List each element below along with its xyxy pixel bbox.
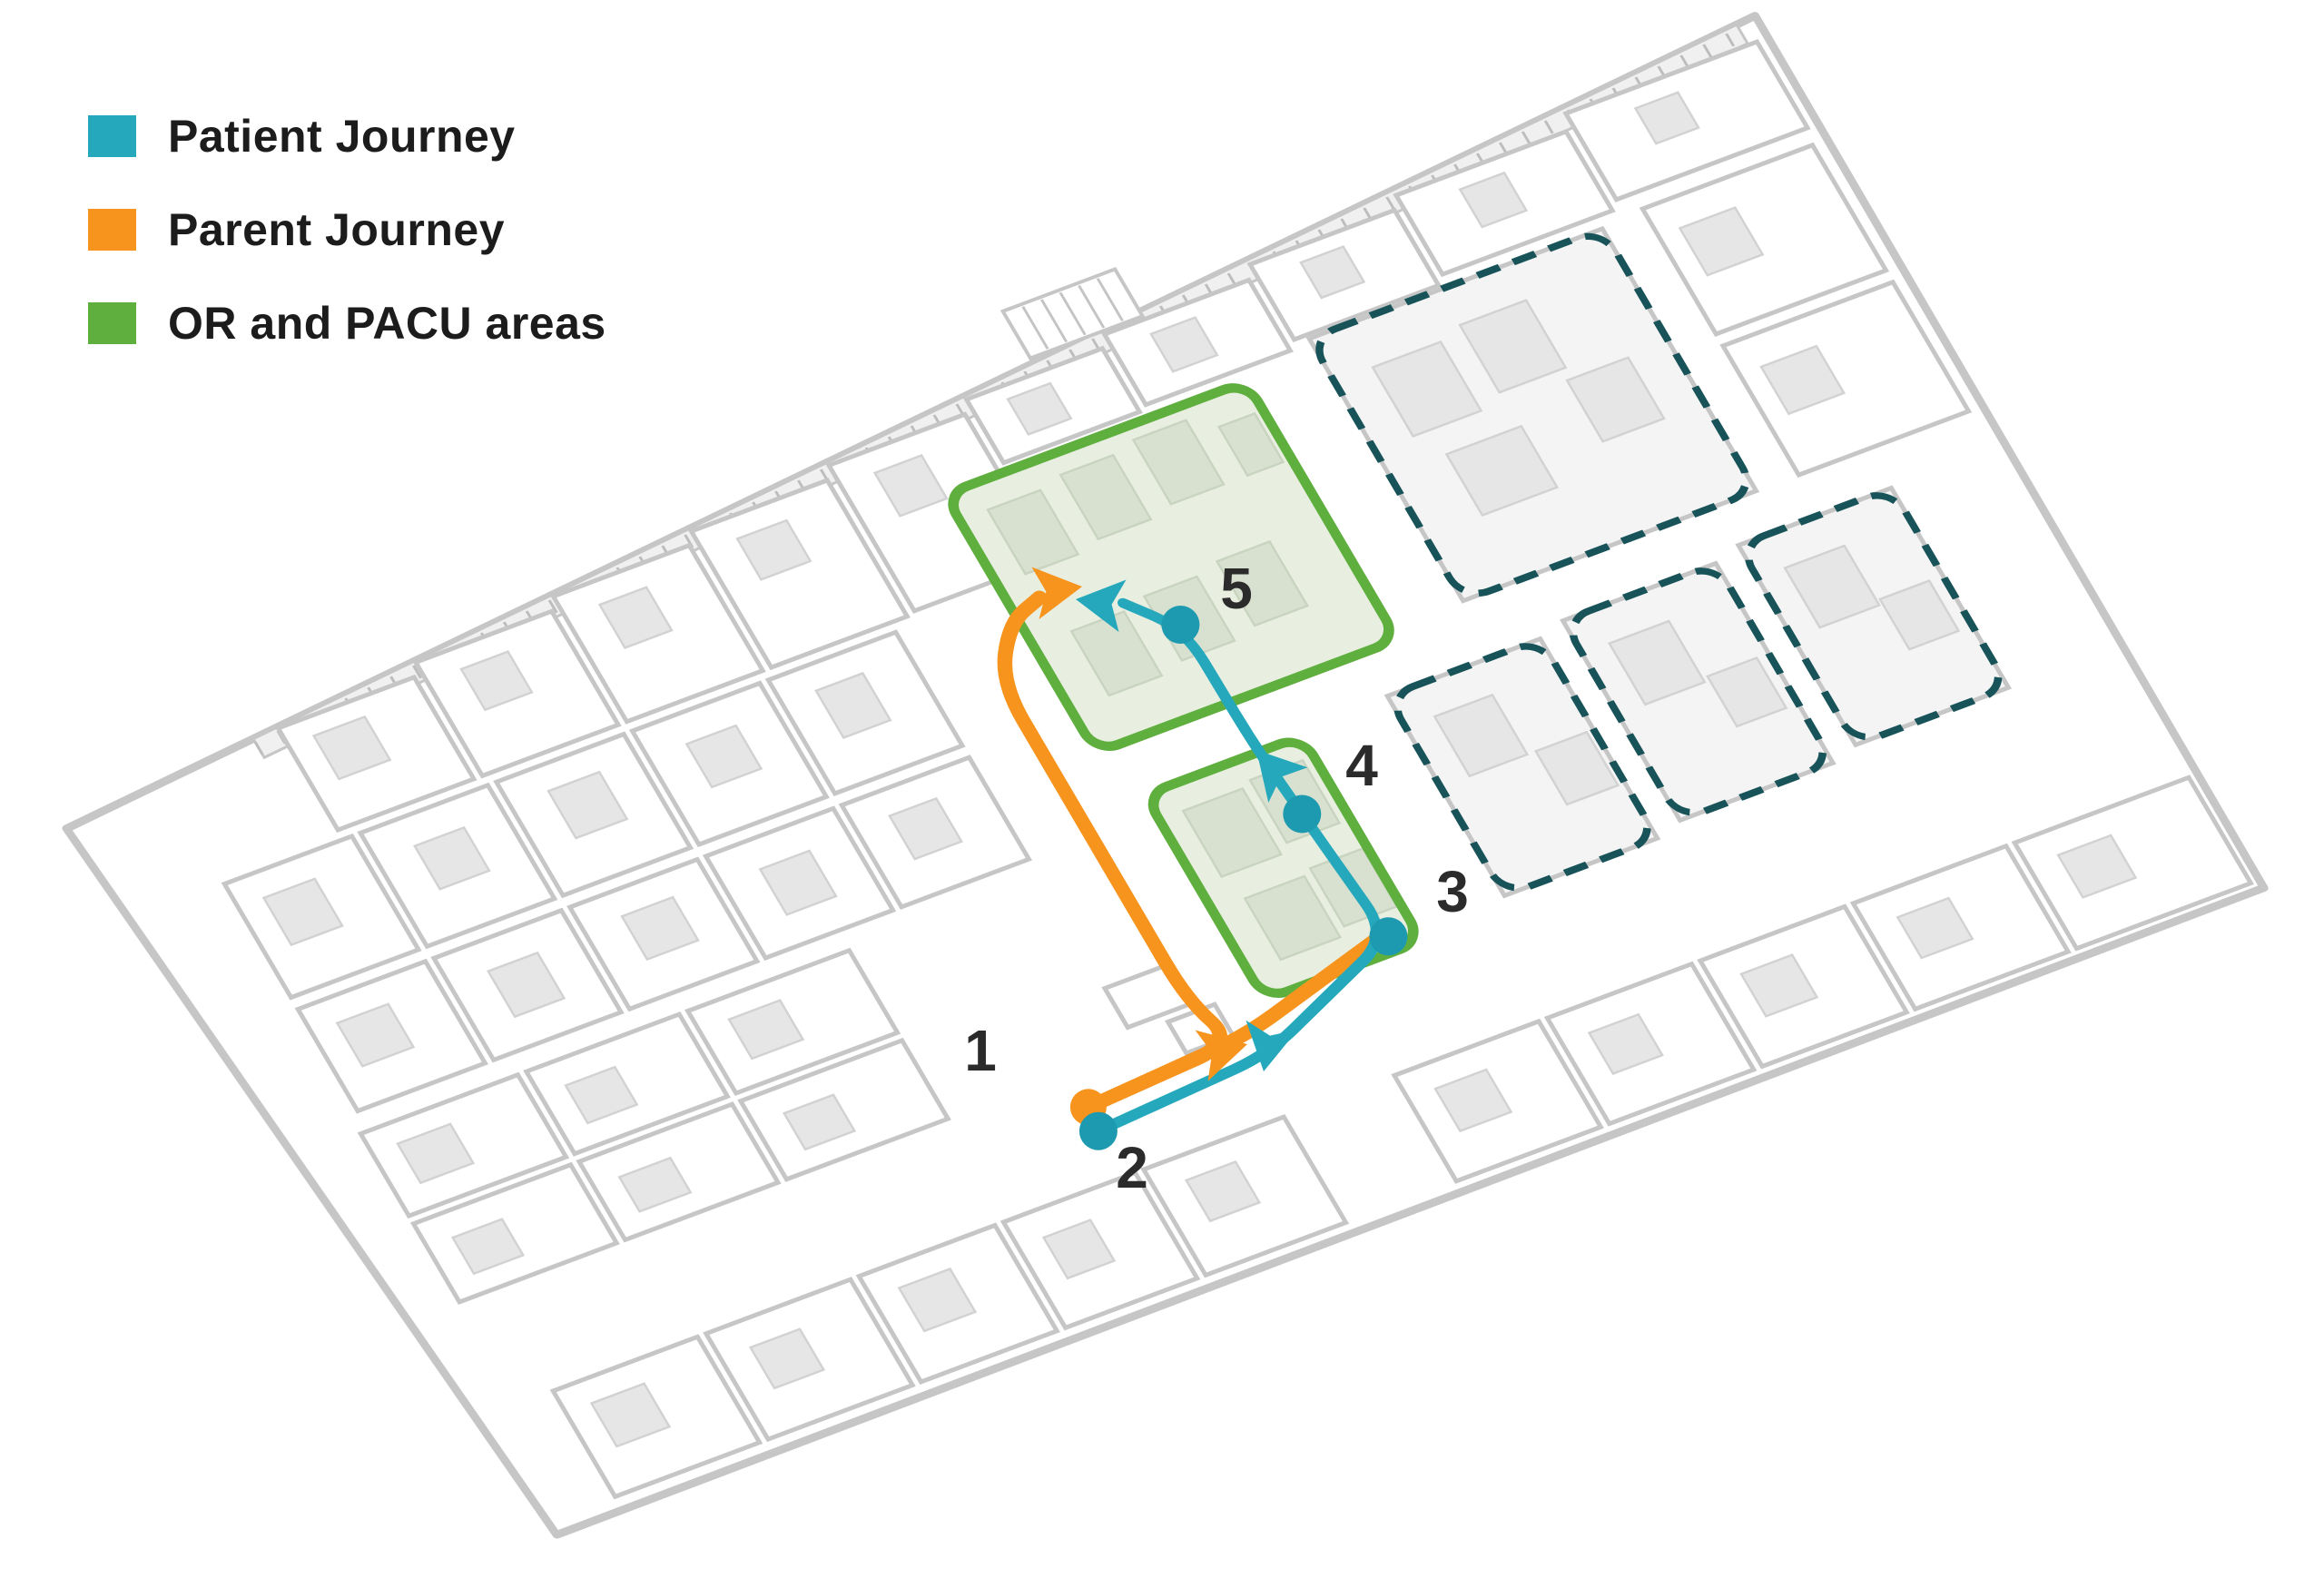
patient-journey-swatch-icon <box>88 115 136 157</box>
patient-journey-label: Patient Journey <box>168 110 516 163</box>
parent-journey-swatch-icon <box>88 209 136 251</box>
area-marker-2: 2 <box>1116 1139 1148 1197</box>
area-marker-4: 4 <box>1345 736 1378 794</box>
stop-3-patient <box>1369 917 1407 955</box>
stop-2-patient <box>1079 1112 1118 1150</box>
legend-item-or-pacu-areas: OR and PACU areas <box>88 302 606 344</box>
or-pacu-areas-swatch-icon <box>88 302 136 344</box>
area-marker-5: 5 <box>1220 559 1253 617</box>
area-marker-3: 3 <box>1436 863 1469 921</box>
area-marker-1: 1 <box>964 1021 997 1080</box>
parent-journey-label: Parent Journey <box>168 203 505 256</box>
legend-item-patient-journey: Patient Journey <box>88 115 606 157</box>
stop-4-patient <box>1283 795 1321 834</box>
legend: Patient Journey Parent Journey OR and PA… <box>88 115 606 344</box>
floor-plan-figure: Patient Journey Parent Journey OR and PA… <box>0 0 2324 1569</box>
legend-item-parent-journey: Parent Journey <box>88 209 606 251</box>
stop-5-patient <box>1161 606 1199 644</box>
or-pacu-areas-label: OR and PACU areas <box>168 297 606 350</box>
